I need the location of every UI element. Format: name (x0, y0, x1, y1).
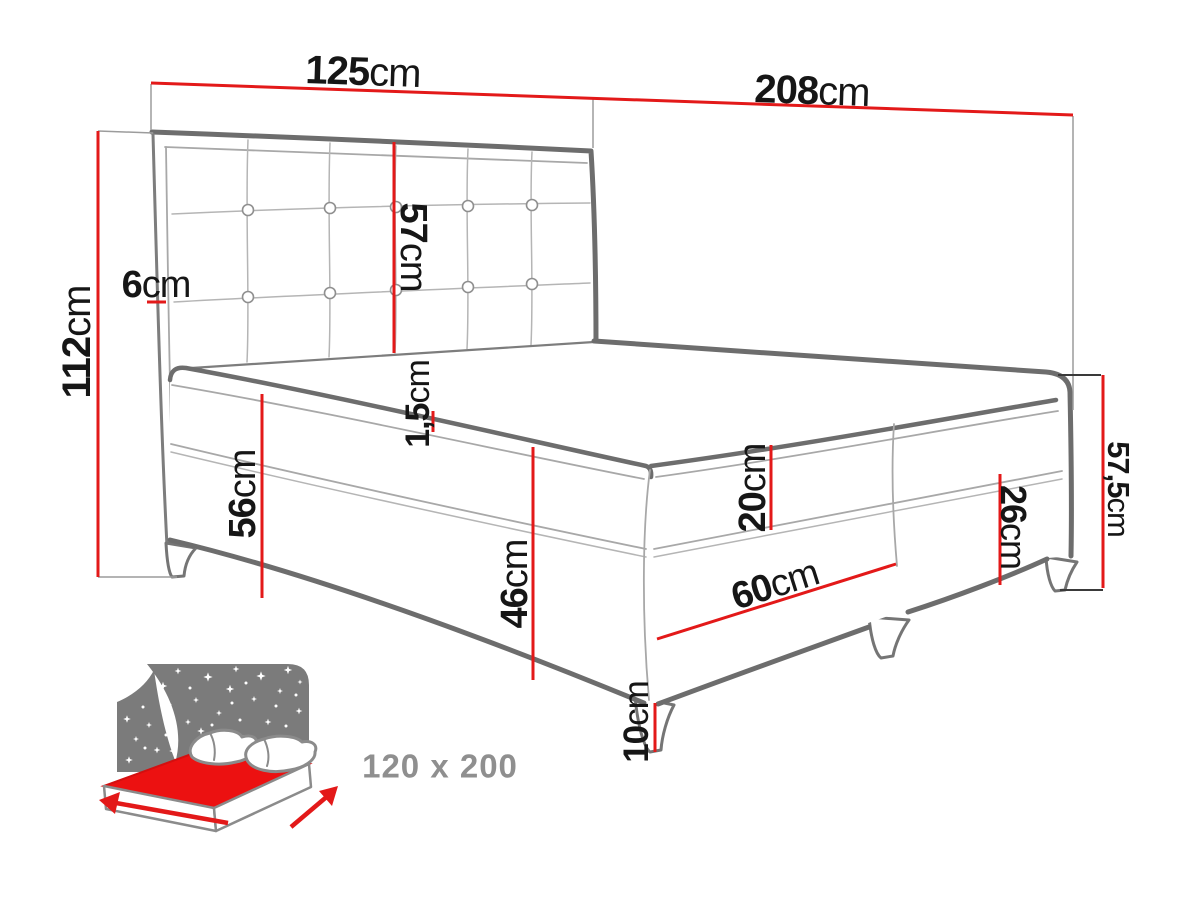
dim-label-10cm: 10cm (617, 681, 656, 763)
mattress-base (170, 341, 1071, 705)
dim-label-6cm: 6cm (122, 264, 191, 306)
diagram-canvas: 125cm 208cm 112cm 6cm 57cm 1,5cm 56cm 46… (0, 0, 1200, 899)
dim-label-26cm: 26cm (994, 485, 1035, 569)
size-badge-label: 120 x 200 (362, 748, 518, 785)
dim-label-1-5cm: 1,5cm (399, 360, 437, 448)
tuft-seam (247, 140, 248, 362)
leg-foot-front (869, 617, 909, 658)
dim-label-112cm: 112cm (55, 286, 99, 399)
bed-dimension-diagram: 125cm 208cm 112cm 6cm 57cm 1,5cm 56cm 46… (0, 0, 1200, 899)
dim-label-57cm: 57cm (392, 203, 434, 292)
dim-line-top (151, 83, 1073, 115)
dim-label-20cm: 20cm (732, 444, 774, 533)
dim-label-208cm: 208cm (754, 67, 871, 115)
dim-label-46cm: 46cm (494, 540, 536, 629)
leg-head-left (166, 543, 196, 577)
dim-label-125cm: 125cm (305, 48, 422, 96)
leg-foot-back (1046, 557, 1077, 591)
dim-label-57-5cm: 57,5cm (1102, 441, 1137, 537)
size-badge: 120 x 200 (99, 664, 518, 831)
bed-drawing (152, 131, 1077, 752)
dim-label-56cm: 56cm (222, 450, 264, 539)
